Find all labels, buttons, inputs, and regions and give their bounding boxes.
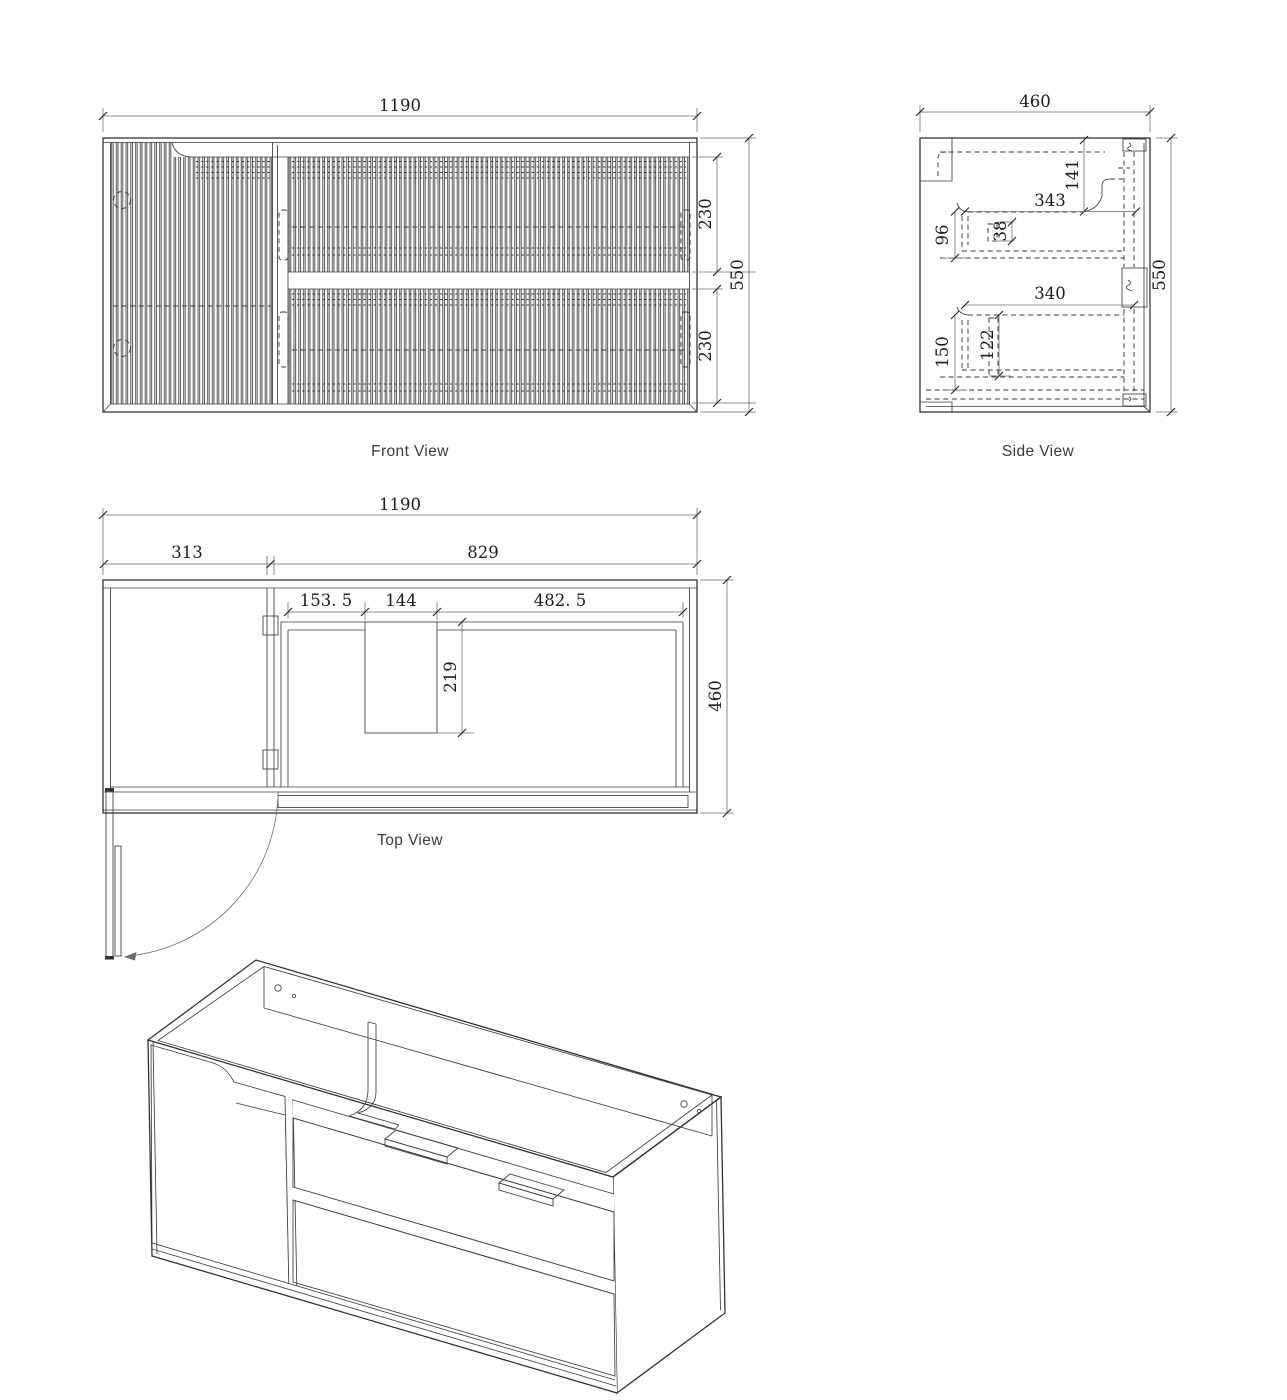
front-top-rail: [193, 143, 690, 158]
side-panel-edges: [920, 138, 1150, 412]
top-view: 1190 313 829 153. 5 144 482. 5 219 460 T…: [99, 495, 734, 961]
top-hinge-plate-2: [263, 750, 278, 769]
top-dim-depth: 460: [706, 680, 725, 712]
side-view: 460 550 141 343 96 38 340 150 12: [916, 92, 1178, 460]
side-dim-runner: 96: [933, 225, 952, 246]
top-dim-drawers: 829: [467, 543, 499, 562]
top-dim-cutout-right: 482. 5: [534, 591, 586, 610]
top-dim-width: 1190: [379, 495, 421, 514]
iso-mount-hole-left-small: [292, 994, 295, 997]
isometric-view: [148, 960, 725, 1393]
technical-drawing-sheet: 1190 230 230 550 Front View: [0, 0, 1287, 1400]
front-drawer-gap: [288, 272, 690, 289]
front-view: 1190 230 230 550 Front View: [99, 96, 756, 460]
side-cabinet-outline: [920, 138, 1150, 412]
front-lower-drawer-flutes: [288, 289, 690, 404]
side-dim-rail: 38: [991, 221, 1010, 242]
iso-mount-hole-right-small: [697, 1109, 700, 1112]
top-open-door: [105, 788, 278, 961]
side-dim-recess: 141: [1063, 159, 1082, 191]
top-dim-door: 313: [171, 543, 203, 562]
side-dim-inner-height: 122: [978, 329, 997, 361]
top-hinge-plate-1: [263, 616, 278, 635]
top-cabinet-outline: [103, 580, 697, 813]
iso-mount-hole-left: [275, 985, 281, 991]
side-dim-lower-depth: 340: [1034, 284, 1066, 303]
side-front-profile: [1122, 139, 1147, 406]
side-dim-depth: 460: [1019, 92, 1051, 111]
iso-mount-hole-right: [681, 1101, 687, 1107]
top-view-label: Top View: [377, 832, 443, 849]
door-swing-arrow: [124, 952, 137, 961]
vanity-cad-drawing: 1190 230 230 550 Front View: [0, 0, 1287, 1400]
front-door-flutes-right: [172, 157, 278, 404]
side-dim-lower-offset: 150: [933, 336, 952, 368]
top-dim-cutout-depth: 219: [441, 661, 460, 693]
front-dim-height: 550: [728, 259, 747, 291]
top-dim-cutout-width: 144: [385, 591, 417, 610]
side-dim-upper-depth: 343: [1034, 191, 1066, 210]
front-dim-upper-drawer: 230: [696, 198, 715, 230]
side-dim-height: 550: [1150, 259, 1169, 291]
side-view-label: Side View: [1002, 443, 1075, 460]
front-door-flutes-left: [111, 143, 173, 405]
side-hidden-lines: [926, 152, 1144, 399]
front-door-drawer-divider-gap: [273, 143, 289, 405]
front-dim-lower-drawer: 230: [696, 330, 715, 362]
top-panel-edges: [103, 588, 697, 810]
top-fluted-front-edge: [278, 796, 688, 808]
side-dimensions: 460 550 141 343 96 38 340 150 12: [916, 92, 1178, 416]
top-dim-cutout-left: 153. 5: [300, 591, 352, 610]
front-view-label: Front View: [371, 443, 449, 460]
door-swing-arc: [128, 792, 278, 956]
top-plumbing-cutout: [365, 622, 437, 733]
front-dim-width: 1190: [379, 96, 421, 115]
top-dimensions: 1190 313 829 153. 5 144 482. 5 219 460: [99, 495, 734, 817]
iso-right-panel: [613, 1097, 725, 1393]
